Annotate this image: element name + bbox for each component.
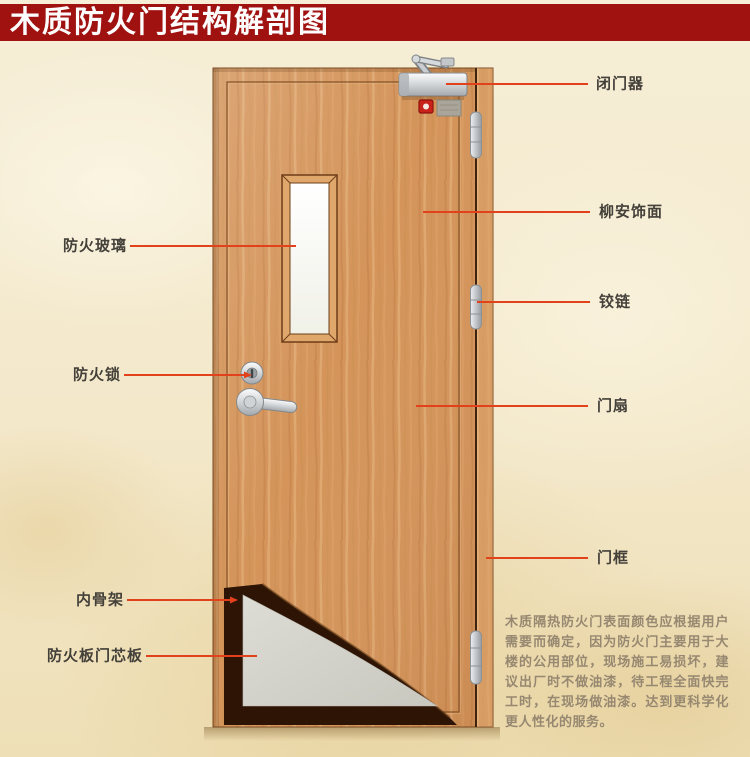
hinge-bottom-graphic (471, 631, 482, 684)
label-fire-glass: 防火玻璃 (63, 239, 127, 254)
name-plaque-graphic (437, 100, 461, 116)
label-door-closer: 闭门器 (596, 77, 644, 92)
door-shadow (204, 727, 500, 741)
label-door-leaf: 门扇 (597, 399, 629, 414)
label-door-frame: 门框 (597, 551, 629, 566)
label-hinge: 铰链 (599, 295, 631, 310)
fire-glass-window-graphic (282, 175, 337, 342)
label-core-board: 防火板门芯板 (47, 649, 143, 664)
hinge-top-graphic (471, 112, 482, 158)
poster: 木质防火门结构解剖图 (0, 0, 750, 757)
description-paragraph: 木质隔热防火门表面颜色应根据用户需要而确定，因为防火门主要用于大楼的公用部位，现… (505, 612, 729, 732)
label-inner-skeleton: 内骨架 (76, 593, 124, 608)
hinge-middle-graphic (471, 285, 482, 329)
label-veneer: 柳安饰面 (599, 205, 663, 220)
door-closer-graphic (399, 55, 467, 100)
door-frame-graphic (476, 68, 493, 727)
alarm-indicator-light (419, 100, 433, 113)
label-fire-lock: 防火锁 (73, 368, 121, 383)
